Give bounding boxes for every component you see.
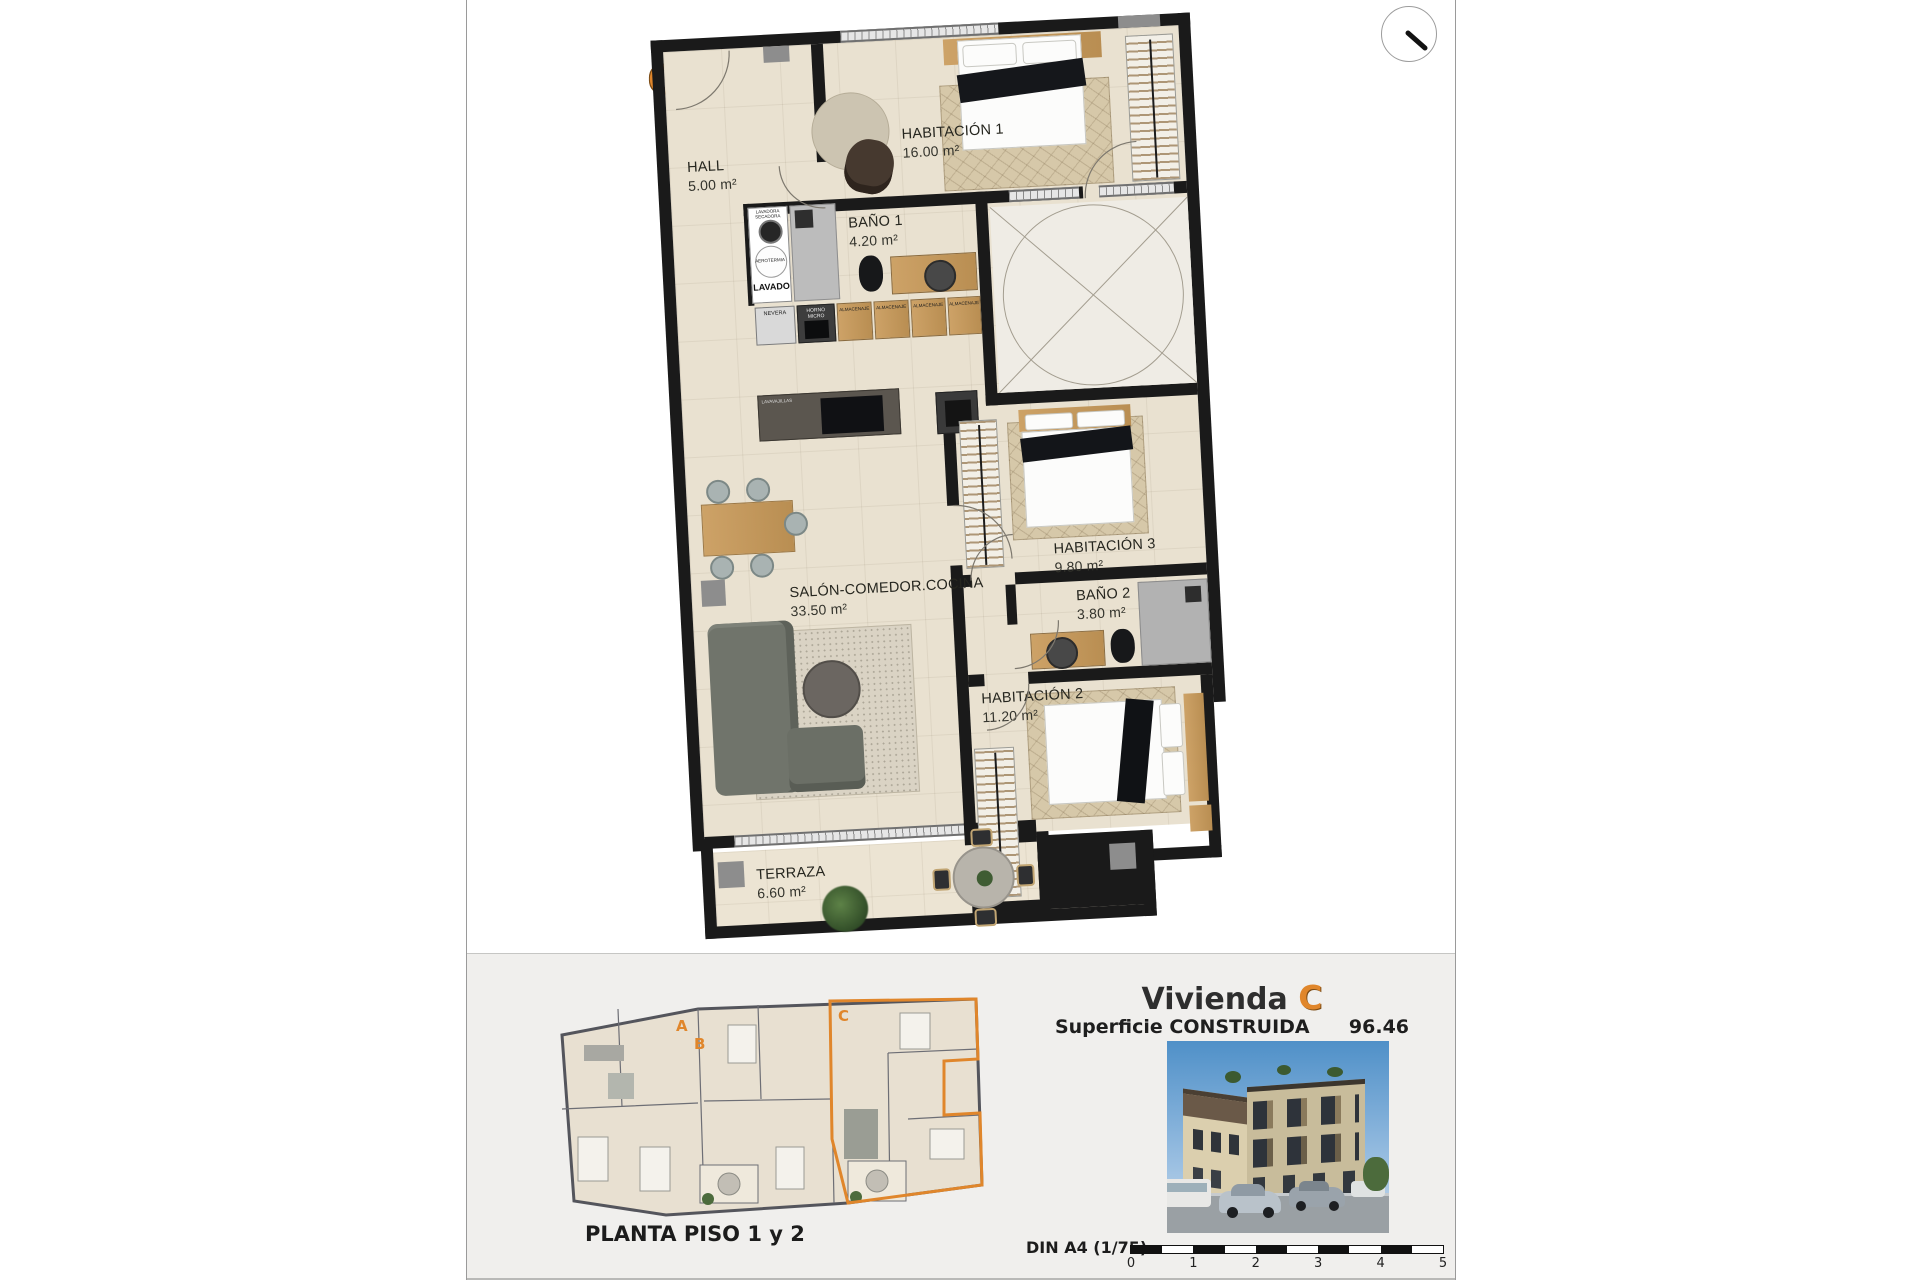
bed-duvet-fold (1117, 698, 1154, 803)
photo-window (1193, 1129, 1203, 1150)
kitchen-unit-almacenaje-1: ALMACENAJE (836, 302, 873, 342)
north-arrow-icon (1381, 6, 1437, 62)
mini-unit-label-c: C (838, 1007, 849, 1025)
scale-segment (1412, 1246, 1443, 1253)
lightwell (990, 197, 1197, 393)
room-label-bano1: BAÑO 1 4.20 m² (848, 212, 904, 251)
pillar-terraza-right (1109, 842, 1136, 869)
scale-tick-3: 3 (1314, 1256, 1322, 1271)
scale-segment (1193, 1246, 1224, 1253)
scale-bar: 0 1 2 3 4 5 (1130, 1245, 1444, 1254)
photo-window (1229, 1134, 1239, 1155)
wardrobe-rail (1149, 40, 1158, 178)
wall-step-block (1037, 830, 1157, 910)
wall-bano2-hab2-a (968, 674, 985, 687)
building-photo (1167, 1041, 1389, 1233)
bano1-toilet (858, 255, 884, 292)
north-arrow-needle (1382, 7, 1436, 61)
habitacion1-wardrobe (1125, 33, 1181, 181)
habitacion3-wardrobe (959, 419, 1005, 569)
scale-segment (1381, 1246, 1412, 1253)
dining-table (701, 500, 796, 557)
unit-title-letter: C (1298, 978, 1322, 1017)
bano2-toilet (1110, 628, 1136, 663)
terraza-chair (1016, 864, 1035, 887)
lightwell-cross (990, 197, 1197, 393)
mini-unit-label-a: A (676, 1017, 688, 1035)
photo-car-gray (1289, 1187, 1345, 1207)
bano2-area: 3.80 m² (1077, 602, 1132, 623)
car-wheel (1296, 1201, 1306, 1211)
car-roof (1299, 1181, 1329, 1191)
room-label-habitacion2: HABITACIÓN 2 11.20 m² (981, 685, 1085, 726)
room-label-bano2: BAÑO 2 3.80 m² (1076, 584, 1132, 623)
mini-plan: A B C (548, 989, 988, 1227)
bano1-sink (923, 259, 957, 293)
pillar-terraza-left (718, 861, 745, 888)
pillar-top-right (1118, 14, 1161, 28)
mini-unit-label-b: B (694, 1035, 705, 1053)
bano2-shower (1137, 578, 1211, 666)
floorplan-sheet: { "plan": { "unit_letter": "C", "rooms":… (0, 0, 1920, 1280)
almacenaje-label: ALMACENAJE (912, 302, 945, 310)
unit-title: Vivienda C (1067, 978, 1397, 1017)
pillow (962, 43, 1017, 68)
photo-floor-band (1253, 1094, 1359, 1129)
scale-tick-2: 2 (1252, 1256, 1260, 1271)
almacenaje-label: ALMACENAJE (838, 306, 871, 314)
scale-tick-0: 0 (1127, 1256, 1135, 1271)
bano1-vanity (890, 252, 978, 294)
kitchen-island: LAVAVAJILLAS (757, 388, 901, 441)
bed-duvet-fold (1020, 425, 1133, 462)
almacenaje-label: ALMACENAJE (949, 300, 980, 308)
almacenaje-label: ALMACENAJE (875, 304, 908, 312)
bano2-name: BAÑO 2 (1076, 585, 1131, 604)
sofa (707, 620, 802, 796)
tv-unit (701, 580, 726, 607)
terraza-name: TERRAZA (756, 864, 826, 884)
hall-name: HALL (687, 158, 725, 176)
bano1-shower (789, 203, 840, 301)
laundry-top-label: LAVADORA SECADORA (749, 208, 785, 220)
photo-roof-plant (1277, 1065, 1291, 1075)
habitacion2-side-table (1189, 804, 1212, 831)
scale-segment (1318, 1246, 1349, 1253)
pillow (1025, 412, 1074, 430)
cooktop (820, 395, 884, 434)
horno-door (804, 320, 829, 339)
pillar-top (763, 46, 790, 63)
sofa-chaise (787, 725, 866, 793)
bano2-sink (1045, 636, 1079, 670)
unit-title-text: Vivienda (1142, 982, 1288, 1017)
photo-floor-band (1253, 1132, 1359, 1167)
kitchen-unit-almacenaje-4: ALMACENAJE (947, 296, 982, 336)
scale-segment (1225, 1246, 1256, 1253)
habitacion3-bed (1021, 426, 1134, 528)
photo-window (1211, 1131, 1221, 1152)
photo-left-band (1183, 1094, 1247, 1125)
bano1-name: BAÑO 1 (848, 213, 903, 232)
scale-label: DIN A4 (1/75) (1026, 1238, 1147, 1257)
car-wheel (1329, 1201, 1339, 1211)
scale-segment (1349, 1246, 1380, 1253)
pillow (1161, 751, 1185, 796)
kitchen-unit-horno: HORNO MICRO (797, 303, 837, 343)
shower-head (1185, 586, 1202, 603)
washer-drum (758, 219, 783, 244)
wall-corridor-bano2 (1005, 584, 1017, 624)
car-wheel (1263, 1207, 1274, 1218)
terraza-chair (932, 868, 951, 891)
nevera-label: NEVERA (756, 310, 794, 318)
shower-head (795, 210, 814, 229)
kitchen-unit-almacenaje-2: ALMACENAJE (873, 300, 910, 340)
photo-window (1211, 1169, 1221, 1188)
kitchen-unit-nevera: NEVERA (755, 306, 797, 346)
photo-van (1167, 1179, 1211, 1207)
room-label-hall: HALL 5.00 m² (687, 156, 738, 195)
page-right-border (1455, 0, 1456, 1280)
terraza-chair (974, 908, 997, 927)
scale-segment (1131, 1246, 1162, 1253)
bano2-vanity (1030, 630, 1106, 670)
van-window (1167, 1183, 1207, 1192)
car-wheel (1227, 1207, 1238, 1218)
terraza-chair (970, 828, 993, 847)
wardrobe-rail (978, 425, 987, 565)
room-label-habitacion3: HABITACIÓN 3 9.80 m² (1053, 535, 1157, 576)
pillow (1159, 703, 1183, 748)
pillow (1076, 409, 1125, 427)
scale-tick-1: 1 (1189, 1256, 1197, 1271)
floor-plan: HALL 5.00 m² HABITACIÓN 1 16.00 m² LAVAD… (650, 12, 1237, 954)
car-roof (1231, 1184, 1265, 1196)
island-label: LAVAVAJILLAS (761, 398, 792, 406)
mini-plan-caption: PLANTA PISO 1 y 2 (585, 1222, 805, 1246)
scale-tick-4: 4 (1376, 1256, 1384, 1271)
kitchen-unit-almacenaje-3: ALMACENAJE (910, 298, 947, 338)
footer-panel: A B C PLANTA PISO 1 y 2 Vivienda C Super… (467, 953, 1455, 1280)
hall-area: 5.00 m² (688, 174, 738, 195)
terraza-area: 6.60 m² (757, 881, 827, 903)
lavado-label: LAVADO (752, 283, 790, 291)
photo-bush (1363, 1157, 1389, 1191)
surface-label: Superficie CONSTRUIDA (1055, 1016, 1310, 1038)
scale-segment (1256, 1246, 1287, 1253)
scale-segment (1162, 1246, 1193, 1253)
room-label-habitacion1: HABITACIÓN 1 16.00 m² (901, 120, 1005, 161)
photo-roof-plant (1225, 1071, 1241, 1083)
scale-segment (1287, 1246, 1318, 1253)
room-label-terraza: TERRAZA 6.60 m² (756, 863, 827, 903)
photo-roof-plant (1327, 1067, 1343, 1077)
bano1-area: 4.20 m² (849, 230, 904, 251)
horno-label: HORNO MICRO (798, 307, 835, 321)
photo-car-silver (1219, 1191, 1281, 1213)
wall-salon-bottom-left-stub (704, 835, 735, 849)
terraza-centerpiece (976, 870, 993, 887)
laundry-column: LAVADORA SECADORA AEROTERMIA LAVADO (747, 206, 792, 304)
scale-tick-5: 5 (1439, 1256, 1447, 1271)
